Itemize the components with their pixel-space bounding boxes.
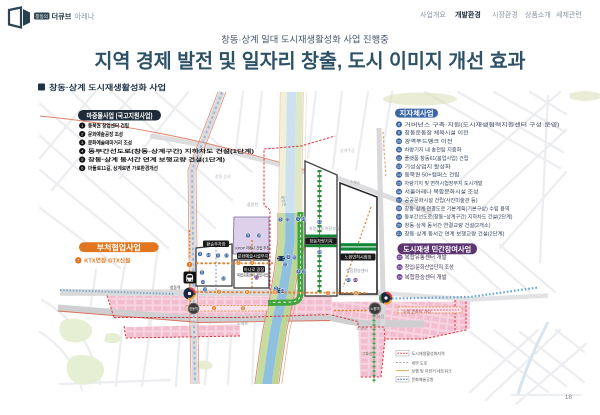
- svg-text:차량기지 및 면허시험장부지 도시개발: 차량기지 및 면허시험장부지 도시개발: [405, 179, 483, 187]
- svg-text:16: 16: [397, 190, 401, 194]
- svg-text:복합환승센터: 복합환승센터: [346, 267, 368, 273]
- svg-text:아레나: 아레나: [75, 12, 95, 21]
- svg-text:12: 12: [222, 277, 226, 281]
- svg-text:기성상업지 활성화: 기성상업지 활성화: [405, 162, 451, 170]
- svg-text:사업개요: 사업개요: [420, 10, 446, 19]
- svg-text:9: 9: [398, 131, 400, 135]
- svg-text:창동·상계 동서간 연계 보행교량 건설(1단계): 창동·상계 동서간 연계 보행교량 건설(1단계): [88, 156, 225, 164]
- svg-text:창동·상계 동서간 연결교량 건설(2개소): 창동·상계 동서간 연결교량 건설(2개소): [405, 221, 491, 229]
- svg-text:창동·상계 연결도로 기본계획(기본구상) 수립 용역: 창동·상계 연결도로 기본계획(기본구상) 수립 용역: [405, 204, 510, 212]
- svg-text:노해로: 노해로: [356, 325, 367, 331]
- svg-text:동부간선도로(창동~상계구간) 지하차도 건설(2단계): 동부간선도로(창동~상계구간) 지하차도 건설(2단계): [405, 213, 513, 221]
- svg-text:14: 14: [397, 173, 401, 177]
- svg-text:2: 2: [213, 306, 215, 310]
- svg-text:3: 3: [199, 252, 201, 256]
- svg-text:21: 21: [286, 218, 290, 222]
- svg-text:창동·상계 도시재생활성화 사업: 창동·상계 도시재생활성화 사업: [49, 82, 166, 92]
- svg-text:13: 13: [201, 280, 205, 284]
- svg-text:20: 20: [293, 256, 297, 260]
- svg-text:18: 18: [397, 207, 401, 211]
- svg-text:문화예술공장 조성: 문화예술공장 조성: [88, 130, 123, 138]
- svg-text:4: 4: [298, 270, 300, 274]
- svg-text:창동의: 창동의: [35, 13, 48, 20]
- svg-text:노원면허시험장: 노원면허시험장: [345, 254, 372, 261]
- svg-text:9: 9: [247, 234, 249, 238]
- svg-text:차량기지 이전부지: 차량기지 이전부지: [309, 225, 340, 231]
- svg-text:2: 2: [327, 291, 329, 295]
- svg-text:도시재생 민간참여사업: 도시재생 민간참여사업: [403, 245, 471, 254]
- svg-text:광역푸드뱅크 이전: 광역푸드뱅크 이전: [405, 137, 453, 145]
- svg-text:복합유통센터 개발: 복합유통센터 개발: [405, 253, 447, 261]
- svg-text:8: 8: [398, 123, 400, 127]
- svg-text:23: 23: [397, 265, 401, 269]
- svg-text:19: 19: [302, 217, 306, 221]
- svg-text:22: 22: [397, 256, 401, 260]
- svg-text:공공문화시설 건립(사진미술관 등): 공공문화시설 건립(사진미술관 등): [405, 196, 478, 204]
- svg-text:창동운동장 체육시설 이전: 창동운동장 체육시설 이전: [405, 129, 469, 137]
- svg-text:17: 17: [225, 254, 229, 258]
- svg-text:7호선: 7호선: [363, 350, 373, 356]
- svg-text:18: 18: [565, 394, 573, 401]
- svg-text:창업/문화산업단지 조성: 창업/문화산업단지 조성: [405, 263, 454, 271]
- svg-text:시장환경: 시장환경: [492, 10, 518, 19]
- svg-text:문화예술테마거리 조성: 문화예술테마거리 조성: [88, 139, 132, 147]
- svg-text:세제관련: 세제관련: [556, 10, 582, 19]
- svg-text:KPOP 아레나 건립 추진: KPOP 아레나 건립 추진: [236, 246, 270, 251]
- svg-text:서울아레나 복합문화시설 조성: 서울아레나 복합문화시설 조성: [405, 187, 479, 195]
- svg-text:노원 문화의 거리: 노원 문화의 거리: [403, 308, 431, 314]
- svg-text:창동·상계 일대 도시재생활성화 사업 진행중: 창동·상계 일대 도시재생활성화 사업 진행중: [221, 33, 389, 44]
- svg-text:문화예술공원: 문화예술공원: [412, 376, 434, 382]
- svg-text:동북권 50+캠퍼스 건립: 동북권 50+캠퍼스 건립: [405, 171, 460, 179]
- svg-text:5: 5: [280, 218, 282, 222]
- svg-text:6: 6: [242, 306, 244, 310]
- svg-text:중랑천: 중랑천: [247, 201, 258, 207]
- svg-text:9: 9: [217, 254, 219, 258]
- svg-text:더큐브: 더큐브: [52, 12, 72, 21]
- svg-text:세부 도로: 세부 도로: [412, 359, 428, 365]
- svg-text:5: 5: [288, 255, 290, 259]
- svg-text:창동차량기지: 창동차량기지: [309, 237, 332, 244]
- svg-text:지자체사업: 지자체사업: [400, 109, 434, 118]
- svg-text:거버넌스 구축·지원(도시재생협력지원센터 구성·운영): 거버넌스 구축·지원(도시재생협력지원센터 구성·운영): [405, 120, 560, 128]
- svg-text:플랫폼 창동61(붐업사업) 건립: 플랫폼 창동61(붐업사업) 건립: [405, 154, 469, 162]
- svg-text:2: 2: [218, 290, 220, 294]
- svg-text:11: 11: [318, 220, 322, 224]
- svg-text:상품소개: 상품소개: [525, 10, 551, 19]
- svg-text:동부간선도로(창동-상계구간) 지하차도 건설(1단계): 동부간선도로(창동-상계구간) 지하차도 건설(1단계): [88, 147, 254, 155]
- svg-text:15: 15: [397, 182, 401, 186]
- svg-text:24: 24: [397, 275, 401, 279]
- svg-text:10: 10: [203, 288, 207, 292]
- svg-text:창동역: 창동역: [170, 285, 181, 290]
- svg-text:노해로: 노해로: [237, 320, 248, 326]
- svg-text:보행 및 자전거 네트워크: 보행 및 자전거 네트워크: [412, 367, 452, 373]
- svg-text:21: 21: [281, 289, 285, 293]
- svg-text:16: 16: [257, 234, 261, 238]
- svg-text:19: 19: [302, 270, 306, 274]
- svg-text:도시재생활성화지역: 도시재생활성화지역: [412, 350, 445, 356]
- svg-text:창동역: 창동역: [189, 306, 198, 311]
- svg-text:차량기지 내 송전탑 지중화: 차량기지 내 송전탑 지중화: [405, 145, 462, 153]
- svg-text:상계주공: 상계주공: [340, 147, 355, 153]
- svg-text:4: 4: [297, 217, 299, 221]
- svg-text:12: 12: [397, 156, 401, 160]
- svg-text:환승주차장: 환승주차장: [206, 240, 225, 247]
- svg-text:지역 경제 발전 및 일자리 창출, 도시 이미지 개선 효: 지역 경제 발전 및 일자리 창출, 도시 이미지 개선 효과: [95, 51, 526, 73]
- svg-text:15: 15: [318, 250, 322, 254]
- svg-text:8: 8: [201, 271, 203, 275]
- svg-text:복합환승센터 개발: 복합환승센터 개발: [405, 273, 447, 281]
- svg-text:3: 3: [251, 261, 253, 265]
- svg-text:10: 10: [397, 140, 401, 144]
- svg-text:19: 19: [397, 215, 401, 219]
- svg-text:KTX연장·GTX신설: KTX연장·GTX신설: [84, 256, 130, 264]
- svg-text:개발환경: 개발환경: [455, 10, 481, 19]
- svg-text:마들로11길, 상계로변 가로환경개선: 마들로11길, 상계로변 가로환경개선: [88, 164, 158, 172]
- svg-text:17: 17: [397, 198, 401, 202]
- svg-text:13: 13: [397, 165, 401, 169]
- svg-text:21: 21: [397, 232, 401, 236]
- svg-text:노원역: 노원역: [370, 306, 379, 311]
- svg-text:21: 21: [283, 263, 287, 267]
- svg-text:마중물사업 (국고지원사업): 마중물사업 (국고지원사업): [87, 111, 153, 120]
- svg-text:동북권 창업센터 건립: 동북권 창업센터 건립: [88, 122, 129, 130]
- svg-text:창동 상권: 창동 상권: [215, 173, 231, 179]
- svg-text:6: 6: [246, 290, 248, 294]
- svg-text:2: 2: [238, 261, 240, 265]
- svg-text:15: 15: [347, 278, 351, 282]
- svg-text:14: 14: [207, 253, 211, 257]
- svg-text:복합유통센터 개발사업: 복합유통센터 개발사업: [237, 273, 268, 278]
- svg-text:백화점: 백화점: [373, 313, 384, 319]
- svg-text:24: 24: [354, 278, 358, 282]
- svg-text:20: 20: [397, 224, 401, 228]
- svg-text:8: 8: [274, 290, 276, 294]
- svg-text:부처협업사업: 부처협업사업: [97, 242, 141, 252]
- svg-text:6: 6: [355, 291, 357, 295]
- svg-text:문화예술시설부지: 문화예술시설부지: [238, 252, 269, 259]
- svg-text:11: 11: [397, 148, 401, 152]
- svg-text:7: 7: [189, 263, 191, 267]
- svg-text:창동·상계 동서간 연계 보행교량 건설(2단계): 창동·상계 동서간 연계 보행교량 건설(2단계): [405, 229, 505, 237]
